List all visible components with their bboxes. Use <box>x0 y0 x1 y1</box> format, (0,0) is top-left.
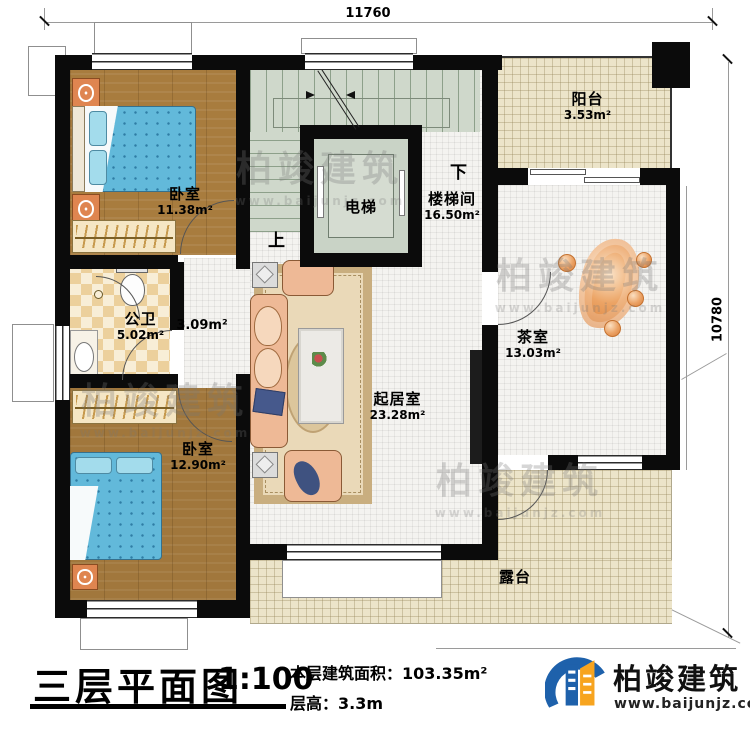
stairs-side-flight <box>250 132 304 232</box>
window <box>87 600 197 618</box>
room-name: 卧室 <box>130 185 240 203</box>
brand-logo: 柏竣建筑 www.baijunjz.com <box>545 652 745 724</box>
wall <box>640 168 668 185</box>
nightstand <box>72 564 98 590</box>
window <box>92 53 192 70</box>
sofa-cushion <box>254 348 282 388</box>
corner-table <box>252 452 278 478</box>
pillow <box>89 111 107 146</box>
room-name: 楼梯间 <box>398 190 506 208</box>
brand-logo-icon <box>545 652 611 722</box>
room-name: 阳台 <box>535 90 640 108</box>
eave-line <box>686 186 687 470</box>
wall <box>236 374 250 618</box>
pillow <box>75 457 112 474</box>
sliding-door <box>584 177 640 183</box>
decor-ball <box>604 320 621 337</box>
room-tearoom-label: 茶室 13.03m² <box>478 328 588 360</box>
corner-table <box>252 262 278 288</box>
brand-url: www.baijunjz.com <box>614 696 750 712</box>
room-hall-label: 3.09m² <box>162 318 242 334</box>
stairs-guide-rail <box>273 98 450 128</box>
stairs-arrow-icon <box>306 91 315 99</box>
wall <box>482 70 498 272</box>
title-underline <box>30 704 286 709</box>
window <box>287 544 441 560</box>
room-bedroom1-label: 卧室 11.38m² <box>130 185 240 217</box>
wall <box>498 168 528 185</box>
room-area: 11.38m² <box>130 203 240 217</box>
wall <box>441 544 498 560</box>
wall <box>55 600 87 618</box>
room-tearoom-floor <box>498 185 666 455</box>
bed-headboard <box>72 106 85 192</box>
wall <box>548 455 578 470</box>
coffee-table <box>298 328 344 424</box>
room-area: 23.28m² <box>340 408 455 422</box>
room-name: 起居室 <box>340 390 455 408</box>
stairs-down-label: 下 <box>450 158 467 183</box>
room-area: 3.09m² <box>162 318 242 334</box>
wall-column <box>652 42 690 88</box>
sliding-door <box>530 169 586 175</box>
brand-name: 柏竣建筑 <box>613 656 741 698</box>
bay-window-outline <box>301 38 417 54</box>
decor-ball <box>627 290 644 307</box>
dimension-right-value: 10780 <box>711 296 726 344</box>
room-elevator-label: 电梯 <box>320 198 402 216</box>
eave-diagonal <box>681 353 727 380</box>
room-terrace-label: 露台 <box>482 568 548 586</box>
wall <box>482 455 498 470</box>
window <box>305 53 413 70</box>
tv <box>470 350 482 464</box>
wall <box>55 55 92 70</box>
room-area: 13.03m² <box>478 346 588 360</box>
room-area: 16.50m² <box>398 208 506 222</box>
plan-title: 三层平面图 <box>33 656 243 711</box>
plan-height-info: 层高：3.3m <box>290 690 383 714</box>
room-name: 茶室 <box>478 328 588 346</box>
wall <box>55 400 70 618</box>
terrace-diagonal <box>672 609 741 643</box>
sink <box>74 342 94 372</box>
room-name: 露台 <box>482 568 548 586</box>
wall <box>55 70 70 326</box>
flower-vase <box>312 352 328 368</box>
wall <box>236 544 287 560</box>
decor-ball <box>558 254 576 272</box>
terrace-outline <box>436 648 736 649</box>
room-living-label: 起居室 23.28m² <box>340 390 455 422</box>
room-bedroom2-label: 卧室 12.90m² <box>143 440 253 472</box>
blanket <box>252 388 285 416</box>
dimension-top-value: 11760 <box>318 6 418 21</box>
decor-ball <box>636 252 652 268</box>
wall <box>642 455 680 470</box>
dimension-right-line <box>728 62 729 638</box>
window <box>55 326 70 400</box>
wall <box>413 55 502 70</box>
wardrobe <box>72 220 176 253</box>
bay-window-outline <box>12 324 54 402</box>
stairs-arrow-icon <box>346 91 355 99</box>
wall <box>55 255 178 269</box>
room-name: 电梯 <box>320 198 402 216</box>
wall <box>236 55 250 269</box>
room-area: 3.53m² <box>535 108 640 122</box>
window <box>578 455 642 470</box>
bay-window-outline <box>282 560 442 598</box>
room-name: 卧室 <box>143 440 253 458</box>
bed-sheet <box>70 486 108 560</box>
room-balcony-label: 阳台 3.53m² <box>535 90 640 122</box>
wardrobe <box>72 390 177 424</box>
sofa-cushion <box>254 306 282 346</box>
plan-area-info: 本层建筑面积：103.35m² <box>290 660 487 684</box>
room-area: 12.90m² <box>143 458 253 472</box>
nightstand <box>72 78 100 108</box>
floor-plan: 11760 10780 <box>0 0 750 729</box>
elevator-cab-panel <box>328 154 394 238</box>
wall <box>666 168 680 470</box>
bay-window-outline <box>80 618 188 650</box>
stairs-up-label: 上 <box>268 226 285 251</box>
bay-window-outline <box>94 22 192 54</box>
room-stairwell-label: 楼梯间 16.50m² <box>398 190 506 222</box>
pillow <box>89 150 107 185</box>
